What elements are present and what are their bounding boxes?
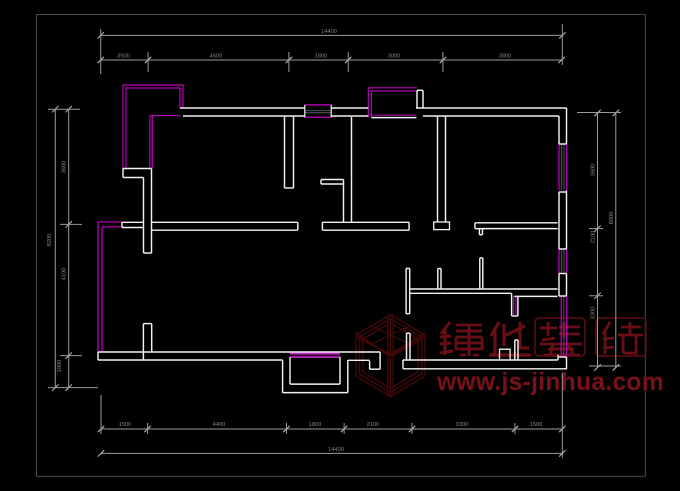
svg-text:4100: 4100 (62, 268, 68, 281)
svg-text:4500: 4500 (210, 54, 223, 60)
svg-text:14400: 14400 (321, 29, 337, 35)
svg-text:3300: 3300 (456, 422, 469, 428)
svg-text:3600: 3600 (62, 161, 68, 174)
svg-text:3800: 3800 (499, 54, 512, 60)
svg-text:3300: 3300 (591, 307, 597, 320)
svg-text:4400: 4400 (213, 422, 226, 428)
svg-text:8000: 8000 (609, 212, 615, 225)
svg-text:1800: 1800 (309, 422, 322, 428)
svg-text:2100: 2100 (591, 231, 597, 244)
svg-text:8200: 8200 (47, 234, 53, 247)
svg-text:14400: 14400 (328, 447, 344, 453)
svg-text:1500: 1500 (530, 422, 543, 428)
svg-text:www.js-jinhua.com: www.js-jinhua.com (436, 369, 664, 396)
svg-text:1000: 1000 (57, 360, 63, 373)
svg-text:2100: 2100 (367, 422, 380, 428)
svg-text:1500: 1500 (119, 422, 132, 428)
svg-text:3000: 3000 (388, 54, 401, 60)
svg-text:3600: 3600 (591, 164, 597, 177)
svg-text:3500: 3500 (117, 54, 130, 60)
svg-text:1800: 1800 (315, 54, 328, 60)
